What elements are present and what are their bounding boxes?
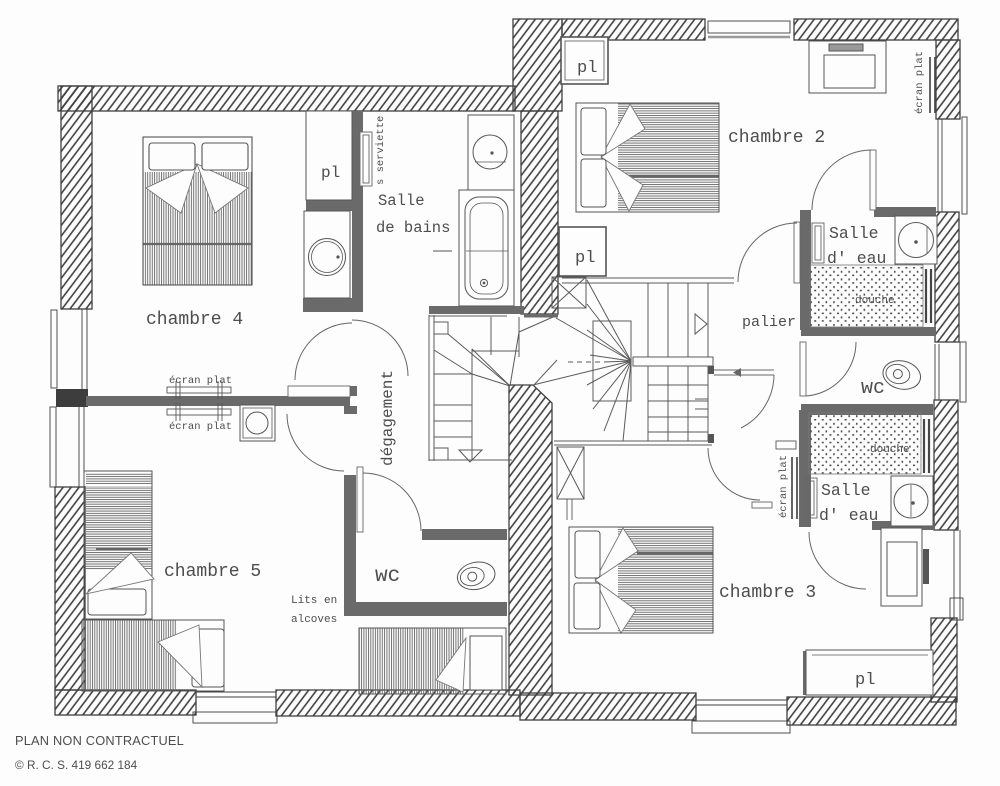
svg-text:Salle: Salle [378,192,425,210]
svg-text:Lits en: Lits en [291,595,337,607]
svg-text:chambre 4: chambre 4 [146,310,243,330]
svg-text:chambre 5: chambre 5 [164,562,261,582]
svg-text:pl: pl [575,249,595,268]
svg-text:écran plat: écran plat [778,455,790,518]
svg-text:wc: wc [861,377,885,400]
svg-text:palier: palier [742,314,796,331]
svg-text:chambre 2: chambre 2 [728,128,825,148]
svg-text:PLAN NON CONTRACTUEL: PLAN NON CONTRACTUEL [15,733,184,748]
svg-text:pl: pl [855,671,875,690]
svg-text:s serviette: s serviette [375,116,387,185]
svg-text:douche: douche [870,444,910,456]
svg-text:écran plat: écran plat [169,421,232,433]
svg-text:de bains: de bains [376,219,450,237]
svg-text:pl: pl [321,164,340,182]
svg-text:dégagement: dégagement [379,370,397,466]
svg-text:alcoves: alcoves [291,614,337,626]
svg-text:écran plat: écran plat [914,51,926,114]
svg-text:Salle: Salle [829,224,879,243]
svg-text:wc: wc [375,565,400,588]
svg-text:douche: douche [855,295,895,307]
svg-text:Salle: Salle [821,481,871,500]
svg-text:© R. C. S. 419 662 184: © R. C. S. 419 662 184 [15,758,138,772]
svg-text:pl: pl [577,59,597,78]
svg-text:chambre 3: chambre 3 [719,583,816,603]
svg-text:écran plat: écran plat [169,375,232,387]
svg-text:d' eau: d' eau [819,506,878,525]
